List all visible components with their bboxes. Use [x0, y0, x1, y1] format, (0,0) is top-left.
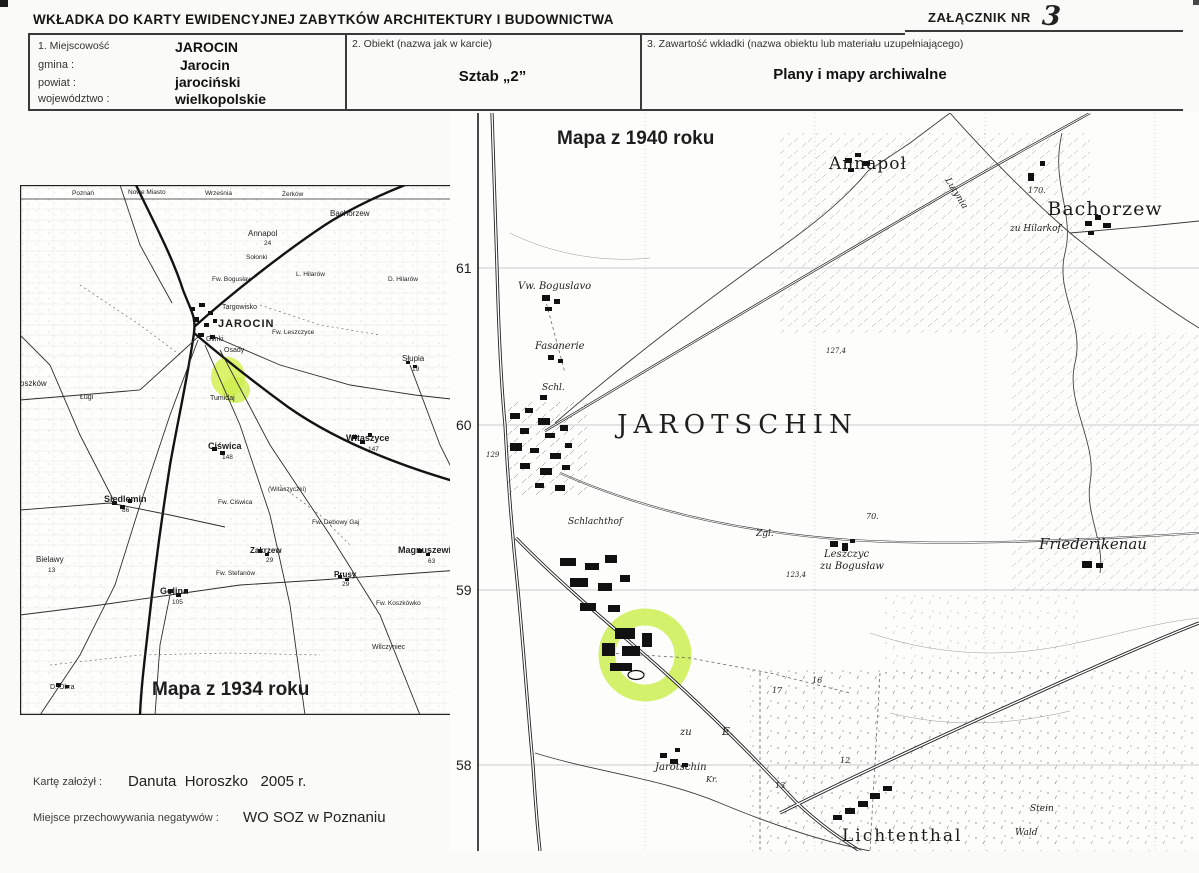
map-label-bachorzew-1934: Bachorzew	[330, 209, 370, 218]
map-label-osady: Osady	[224, 347, 245, 354]
map-label-prusy: Prusy	[334, 570, 357, 579]
map-label-annapol-1934: Annapol	[248, 229, 278, 238]
map-label-70: 70.	[866, 512, 879, 521]
field-zawartosc-value: Plany i mapy archiwalne	[640, 66, 1080, 83]
map-label-poznan: Poznań	[72, 190, 94, 197]
map-label-jarocin: JAROCIN	[218, 318, 275, 330]
map-label-targowisko: Targowisko	[222, 304, 257, 311]
map-label-zerkow: Żerków	[282, 189, 304, 198]
map-label-12: 12	[840, 756, 850, 765]
map-label-solonki: Sołonki	[246, 254, 267, 261]
map-1940-caption: Mapa z 1940 roku	[557, 128, 714, 149]
map-1940-drawing: 61 60 59 58 Annapoł Bachorzew zu Hilarko…	[450, 113, 1199, 851]
map-label-lichtenthal: Lichtenthal	[842, 826, 962, 846]
map-label-fw-boguslaw: Fw. Bogusław	[212, 276, 252, 283]
map-label-magnuszewic: Magnuszewic	[398, 545, 456, 555]
map-label-bielawy: Bielawy	[36, 555, 64, 564]
map-label-leszczyc-1: Leszczyc	[823, 549, 869, 560]
map-label-schlachthof: Schlachthof	[568, 517, 624, 527]
map-label-golina: Golina	[160, 586, 189, 596]
map-label-zgl: Zgl.	[755, 529, 774, 539]
map-label-zakrzew-no: 29	[266, 557, 274, 564]
map-label-witaszyce: Witaszyce	[346, 433, 389, 443]
map-label-lugi: Ługi	[80, 394, 94, 401]
map-label-wald: Wald	[1015, 828, 1038, 838]
field-wojewodztwo-value: wielkopolskie	[175, 91, 266, 107]
map-label-jarotschin-city: JAROTSCHIN	[614, 410, 858, 440]
attachment-label: ZAŁĄCZNIK NR	[928, 10, 1031, 25]
negatives-location-value: WO SOZ w Poznaniu	[243, 809, 386, 826]
map-label-zu: zu	[679, 727, 692, 738]
map-label-tumidaj: Tumidaj	[210, 395, 235, 402]
map-label-annapol-no: 24	[264, 240, 272, 247]
map-label-slupia: Słupia	[402, 354, 425, 363]
map-label-129: 129	[486, 451, 500, 459]
map-label-kr: Kr.	[705, 775, 717, 784]
map-label-e: E.	[721, 725, 734, 738]
map-label-leszczyc-2: zu Bogusław	[819, 561, 884, 572]
map-label-fw-ciswica: Fw. Ciświca	[218, 499, 253, 506]
field-powiat-label: powiat :	[38, 77, 76, 89]
map-label-fw-leszczyce: Fw. Leszczyce	[272, 329, 315, 336]
field-miejscowosc-value: JAROCIN	[175, 39, 238, 55]
card-founder-label: Kartę założył :	[33, 776, 102, 788]
map-label-fw-stefanow: Fw. Stefanów	[216, 570, 255, 577]
map-label-zu-hilarkof: zu Hilarkof.	[1009, 224, 1064, 234]
scan-edge-mark	[1193, 0, 1199, 5]
map-label-d-hilarow: D. Hilarów	[388, 276, 418, 283]
map-label-fw-debowy-gaj: Fw. Dębowy Gaj	[312, 519, 359, 526]
map-1934-caption: Mapa z 1934 roku	[152, 679, 309, 700]
field-obiekt-value: Sztab „2”	[345, 68, 640, 85]
card-founder-value: Danuta Horoszko 2005 r.	[128, 773, 306, 790]
map-label-nowe-miasto: Nowe Miasto	[128, 189, 166, 196]
page-title: WKŁADKA DO KARTY EWIDENCYJNEJ ZABYTKÓW A…	[33, 12, 614, 27]
map-label-golina-no: 105	[172, 599, 183, 606]
map-1934-drawing: Poznań Nowe Miasto Września Żerków Bacho…	[20, 185, 460, 715]
map-label-127: 127,4	[826, 347, 846, 355]
map-label-wilczyniec: Wilczyniec	[372, 644, 406, 651]
map-label-13: 13	[775, 781, 785, 790]
map-label-wrzesnia: Września	[205, 190, 232, 197]
map-label-fw-koszkowko: Fw. Koszkówko	[376, 600, 421, 607]
map-label-ciswica-no: 148	[222, 454, 233, 461]
field-gmina-value: Jarocin	[180, 57, 230, 73]
map-label-123: 123,4	[786, 571, 806, 579]
scan-corner-mark	[0, 0, 8, 7]
scanned-card-page: WKŁADKA DO KARTY EWIDENCYJNEJ ZABYTKÓW A…	[0, 0, 1199, 873]
field-powiat-value: jarociński	[175, 74, 240, 90]
map-label-bachorzew-1940: Bachorzew	[1047, 198, 1162, 220]
map-label-17: 17	[772, 686, 783, 695]
map-label-schl: Schl.	[542, 383, 565, 393]
map-label-magnuszewic-no: 63	[428, 558, 436, 565]
field-obiekt-label: 2. Obiekt (nazwa jak w karcie)	[352, 38, 492, 50]
form-bottom-border	[28, 109, 1183, 111]
map-label-friederikenau: Friederikenau	[1038, 535, 1147, 553]
form-left-border	[28, 33, 30, 111]
map-label-l-hilarow: L. Hilarów	[296, 271, 325, 278]
map-label-16: 16	[812, 676, 822, 685]
field-miejscowosc-label: 1. Miejscowość	[38, 40, 109, 52]
map-label-bielawy-no: 13	[48, 567, 56, 574]
map-label-slupia-no: 19	[412, 366, 420, 373]
field-wojewodztwo-label: województwo :	[38, 93, 110, 105]
grid-number-61: 61	[456, 260, 472, 276]
map-label-d-obra: D. Obra	[50, 684, 75, 691]
map-1934: Poznań Nowe Miasto Września Żerków Bacho…	[20, 185, 460, 715]
map-1940: 61 60 59 58 Annapoł Bachorzew zu Hilarko…	[450, 113, 1199, 851]
map-label-170: 170.	[1028, 186, 1046, 195]
map-label-annapol-1940: Annapoł	[828, 154, 907, 174]
map-label-glinki: Glinki	[206, 336, 224, 343]
map-label-zakrzew: Zakrzew	[250, 546, 282, 555]
form-top-border	[28, 33, 905, 35]
map-label-fasanerie: Fasanerie	[534, 341, 585, 352]
map-label-siedlemin-no: 86	[122, 507, 130, 514]
field-zawartosc-label: 3. Zawartość wkładki (nazwa obiektu lub …	[647, 38, 963, 50]
grid-number-60: 60	[456, 417, 472, 433]
map-label-stein: Stein	[1030, 804, 1054, 814]
grid-number-59: 59	[456, 582, 472, 598]
attachment-underline	[905, 30, 1183, 32]
map-label-ciswica: Ciświca	[208, 441, 243, 451]
map-label-roszkow: oszków	[20, 379, 47, 388]
map-label-witaszyce-no: 147	[368, 446, 379, 453]
map-label-jarotschin-village: Jarotschin	[653, 762, 707, 773]
map-label-siedlemin: Siedlemin	[104, 494, 147, 504]
field-gmina-label: gmina :	[38, 59, 74, 71]
map-label-prusy-no: 29	[342, 581, 350, 588]
negatives-location-label: Miejsce przechowywania negatywów :	[33, 812, 219, 824]
attachment-number-handwritten: 3	[1041, 1, 1061, 33]
map-label-vw-boguslavo: Vw. Boguslavo	[518, 281, 591, 292]
grid-number-58: 58	[456, 757, 472, 773]
map-label-witaszyczki: (Witaszyczki)	[268, 486, 306, 493]
